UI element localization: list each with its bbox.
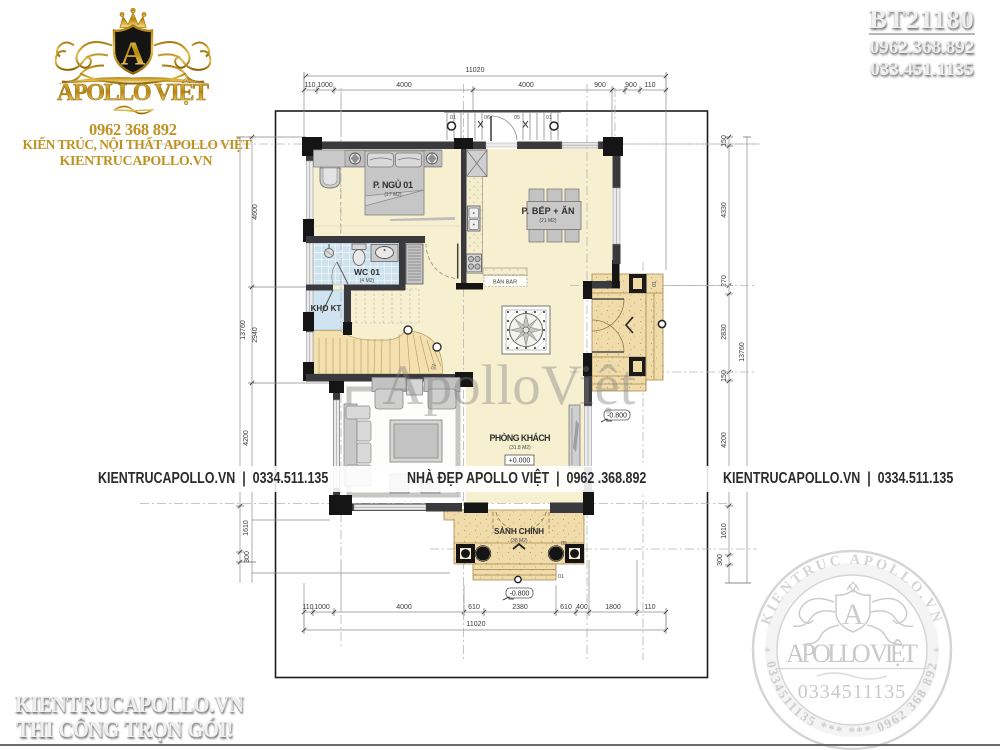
svg-text:4200: 4200 [243,430,250,446]
svg-text:SẢNH CHÍNH: SẢNH CHÍNH [494,525,544,536]
svg-text:KHO KT: KHO KT [311,304,342,313]
svg-text:+0.000: +0.000 [509,458,531,465]
svg-text:13760: 13760 [739,342,746,362]
svg-text:KIENTRUCAPOLLO.VN: KIENTRUCAPOLLO.VN [60,154,213,169]
svg-text:11020: 11020 [467,621,486,628]
svg-text:110: 110 [644,82,655,89]
svg-text:270: 270 [721,275,728,287]
svg-text:05: 05 [561,541,567,547]
svg-text:*: * [764,644,771,659]
svg-text:1800: 1800 [605,604,621,611]
svg-text:2830: 2830 [721,324,728,340]
svg-text:610: 610 [560,604,572,611]
svg-text:150: 150 [721,135,728,147]
svg-text:P. NGỦ 01: P. NGỦ 01 [373,179,413,190]
svg-text:05: 05 [514,115,520,121]
svg-text:610: 610 [468,604,480,611]
svg-text:4600: 4600 [252,204,259,220]
svg-text:01: 01 [450,115,456,121]
svg-text:WC 01: WC 01 [354,267,380,277]
svg-text:110: 110 [304,82,315,89]
svg-text:4000: 4000 [518,82,534,89]
svg-text:4000: 4000 [396,604,412,611]
svg-text:(17 M2): (17 M2) [384,192,402,198]
svg-text:A: A [121,36,146,73]
svg-text:KIẾN TRÚC, NỘI THẤT APOLLO VIỆ: KIẾN TRÚC, NỘI THẤT APOLLO VIỆT [23,137,252,152]
svg-text:(4 M2): (4 M2) [360,278,375,284]
svg-text:1000: 1000 [317,82,333,89]
svg-text:P. BẾP + ĂN: P. BẾP + ĂN [522,206,575,216]
svg-text:300: 300 [244,551,251,563]
svg-text:2940: 2940 [252,327,259,343]
svg-text:(31.8 M2): (31.8 M2) [509,445,531,451]
svg-text:1610: 1610 [721,523,728,539]
svg-text:01: 01 [558,574,564,580]
svg-text:-0.800: -0.800 [510,591,530,598]
svg-text:110: 110 [644,604,655,611]
svg-text:*: * [933,644,940,659]
svg-text:01: 01 [546,115,552,121]
svg-text:1610: 1610 [243,520,250,536]
svg-text:1000: 1000 [314,604,330,611]
svg-text:110: 110 [302,604,313,611]
svg-text:A: A [842,598,864,631]
svg-text:(21 M2): (21 M2) [539,218,557,224]
svg-text:900: 900 [594,82,606,89]
svg-text:2380: 2380 [512,604,528,611]
svg-text:APOLLO VIỆT: APOLLO VIỆT [786,639,918,668]
svg-text:APOLLO VIỆT: APOLLO VIỆT [57,80,209,106]
svg-text:06: 06 [484,115,490,121]
svg-text:ApolloViệt: ApolloViệt [382,354,635,417]
svg-text:PHÒNG KHÁCH: PHÒNG KHÁCH [490,432,551,443]
svg-text:11020: 11020 [466,67,485,74]
svg-text:01: 01 [652,281,658,287]
svg-text:0334511135: 0334511135 [798,681,907,703]
svg-text:4200: 4200 [721,432,728,448]
svg-text:BÀN BAR: BÀN BAR [493,279,517,286]
svg-text:4000: 4000 [396,82,412,89]
svg-text:400: 400 [576,604,588,611]
svg-text:900: 900 [625,82,637,89]
svg-text:300: 300 [717,554,724,566]
svg-text:4330: 4330 [721,202,728,218]
svg-text:13760: 13760 [240,320,247,340]
